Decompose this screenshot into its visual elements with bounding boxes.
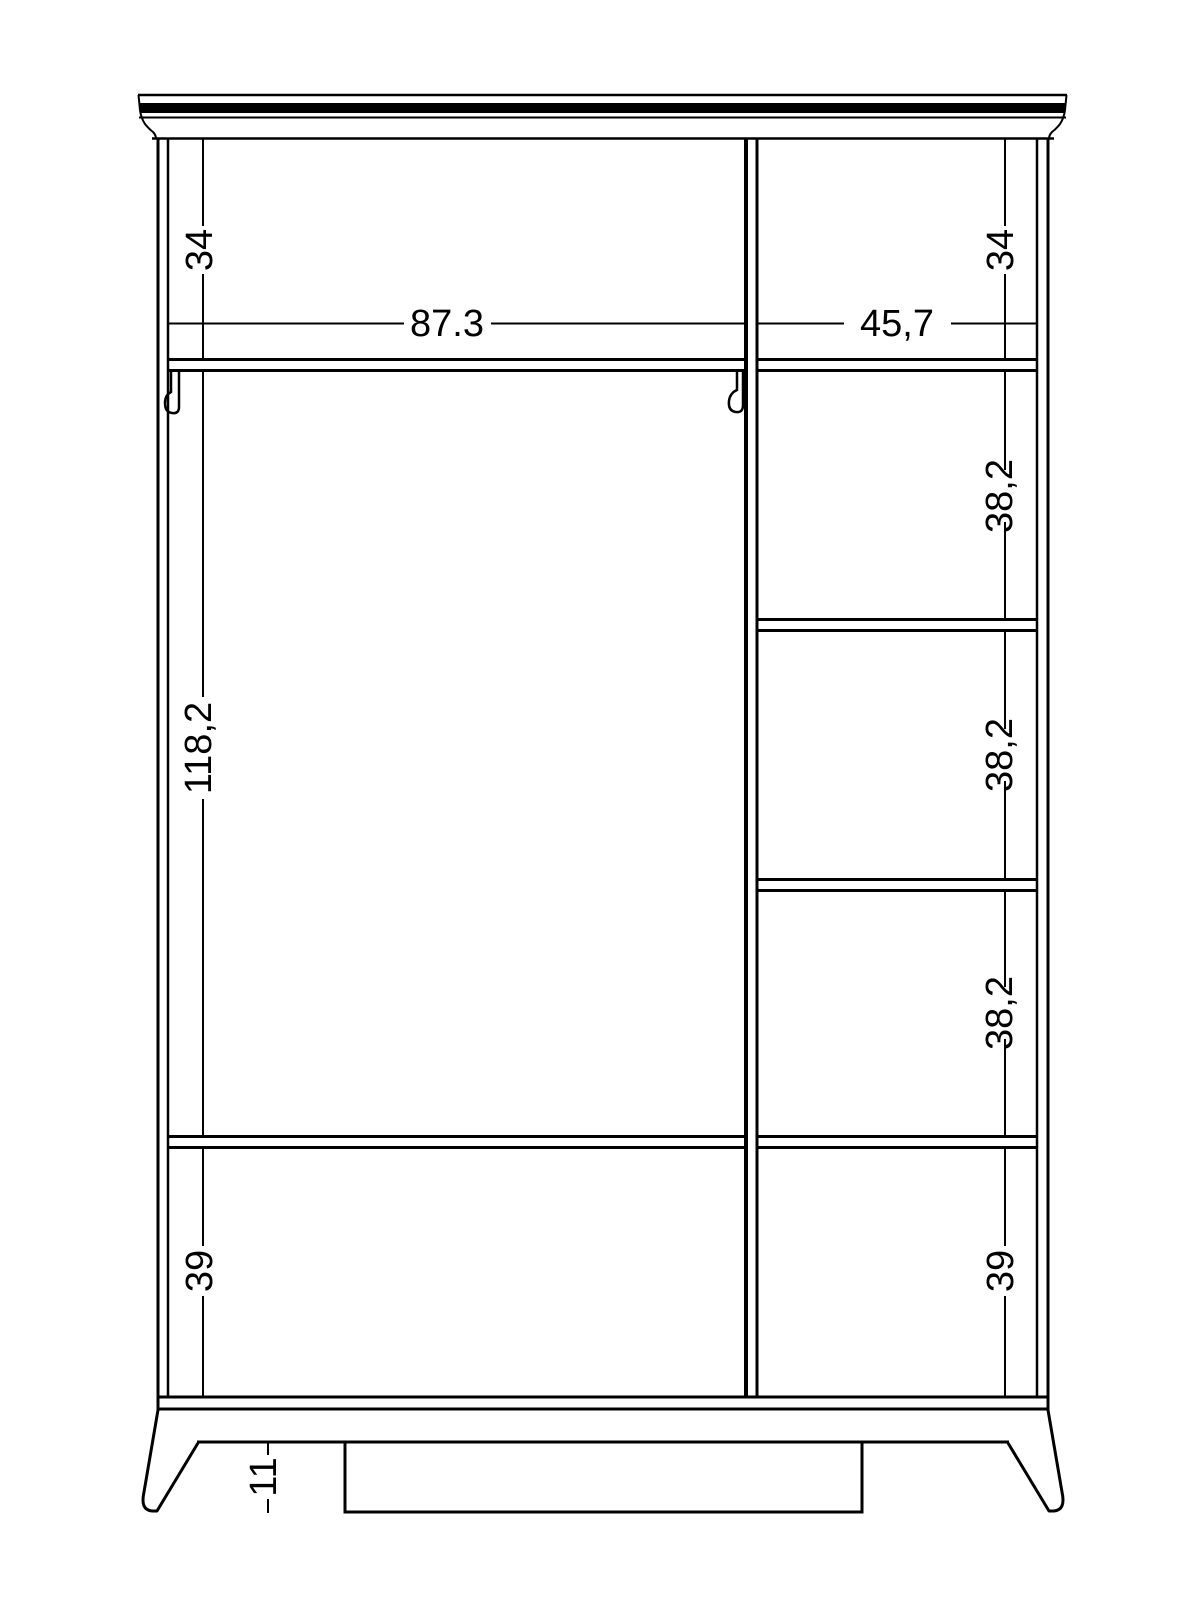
plinth-recessed-panel — [345, 1442, 862, 1512]
dim-top-left-gap: 34 — [179, 229, 221, 271]
left-foot — [143, 1410, 198, 1511]
crown-molding — [138, 95, 1067, 139]
dim-bottom-left-gap: 39 — [179, 1250, 221, 1292]
wardrobe-drawing: 34 34 87.3 45,7 118,2 38,2 38,2 38,2 39 … — [0, 0, 1200, 1600]
dim-bottom-right-gap: 39 — [980, 1250, 1022, 1292]
lower-shelf — [168, 1137, 1037, 1148]
right-side-panel — [1037, 139, 1048, 1410]
dimension-labels: 34 34 87.3 45,7 118,2 38,2 38,2 38,2 39 … — [178, 229, 1022, 1497]
technical-drawing-canvas: 34 34 87.3 45,7 118,2 38,2 38,2 38,2 39 … — [0, 0, 1200, 1600]
left-side-panel — [158, 139, 168, 1410]
dim-left-compartment-width: 87.3 — [410, 303, 484, 345]
dim-right-compartment-width: 45,7 — [860, 303, 934, 345]
dim-right-shelf-gap-3: 38,2 — [979, 976, 1021, 1050]
top-shelf — [168, 360, 1037, 371]
crown-dark-band — [140, 103, 1065, 113]
dim-right-shelf-gap-2: 38,2 — [979, 718, 1021, 792]
hanging-rail-bracket-right — [729, 372, 743, 412]
dimension-lines — [168, 139, 1037, 1513]
right-shelf-3 — [757, 880, 1037, 891]
dim-right-shelf-gap-1: 38,2 — [979, 459, 1021, 533]
right-foot — [1008, 1410, 1063, 1511]
center-divider — [746, 139, 757, 1397]
dim-left-compartment-height: 118,2 — [178, 702, 220, 794]
dim-top-right-gap: 34 — [980, 229, 1022, 271]
bottom-panel — [157, 1397, 1049, 1409]
dim-foot-height: 11 — [243, 1457, 285, 1496]
right-shelf-2 — [757, 620, 1037, 631]
